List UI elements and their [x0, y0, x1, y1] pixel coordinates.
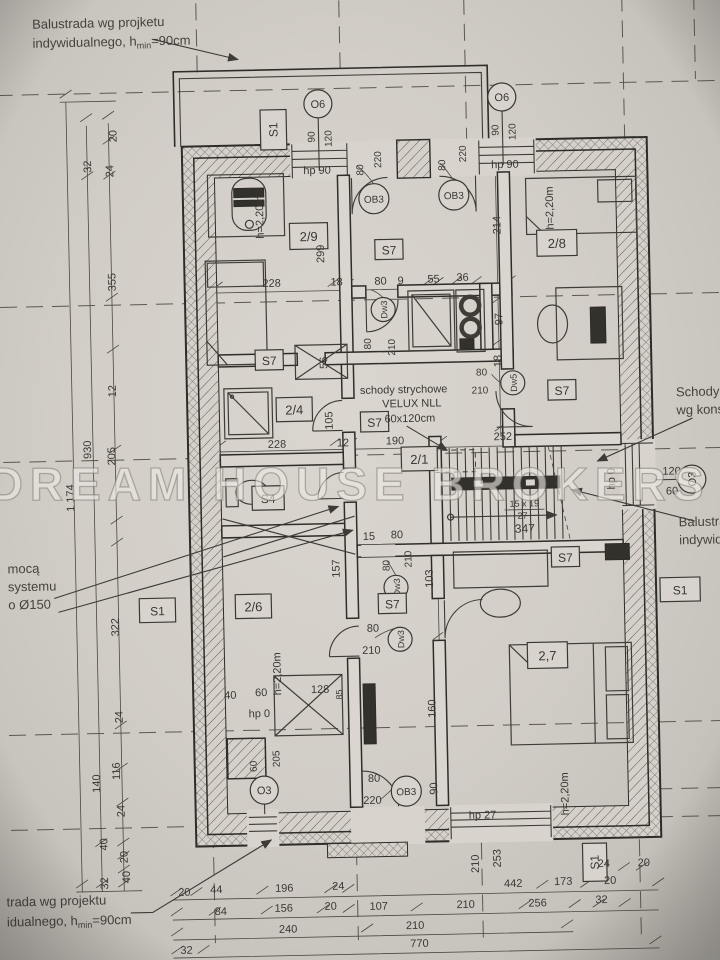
wall-tag-s7: S7 — [554, 384, 569, 398]
dim-label: 80 — [368, 773, 380, 785]
dim-label: 24 — [114, 711, 126, 723]
dim-label: 32 — [99, 877, 111, 889]
room-label-24: 2/4 — [285, 402, 303, 417]
dim-label: 156 — [274, 903, 293, 915]
dim-label: 60 — [255, 687, 267, 699]
dim-label: 157 — [330, 559, 342, 578]
dim-label: 24 — [104, 165, 116, 177]
note-balustrade-right-line2: indywidua — [679, 531, 720, 547]
dim-label: 80 — [367, 623, 379, 635]
dim-label: 12 — [107, 385, 119, 397]
dim-label: 12 — [337, 437, 349, 449]
dim-label: 40 — [121, 871, 133, 883]
dim-label: 107 — [369, 901, 388, 913]
dim-label: 210 — [456, 899, 475, 911]
dim-label: 770 — [410, 938, 429, 950]
dim-label: 32 — [82, 160, 94, 172]
dim-label: 930 — [82, 440, 94, 459]
stair-run-label: 347 — [515, 521, 536, 535]
dim-label: 116 — [111, 762, 123, 780]
dim-label: 220 — [458, 145, 469, 162]
sill-label: hp 0 — [249, 708, 271, 720]
door-tag-dw3: Dw3 — [396, 630, 406, 648]
floor-plan-photo: O6 O6 OB3 OB3 OB3 O3 O3 Dw3 Dw3 Dw3 Dw5 … — [0, 0, 720, 960]
dim-label: 220 — [373, 151, 384, 168]
note-attic-line1: schody strychowe — [360, 383, 448, 397]
dim-label: 18 — [330, 276, 342, 288]
window-tag-o6: O6 — [494, 92, 509, 104]
dim-label: 32 — [180, 945, 192, 957]
sill-label: hp 27 — [469, 809, 497, 822]
note-vent-line1: mocą — [7, 561, 40, 577]
dim-label: 20 — [324, 901, 336, 913]
dim-label: 80 — [437, 159, 448, 171]
dim-label: 299 — [315, 245, 327, 264]
dim-label: 24 — [598, 858, 610, 870]
dim-label: 20 — [638, 857, 650, 869]
dim-label: 44 — [210, 884, 222, 896]
dim-label: 256 — [528, 897, 547, 909]
note-stairs-line1: Schody ż — [676, 383, 720, 399]
dim-label: 240 — [279, 923, 298, 935]
door-tag-ob3: OB3 — [396, 787, 417, 798]
stair-riser-label: 27 — [517, 511, 527, 521]
room-label-28: 2/8 — [548, 236, 566, 251]
wall-pier — [397, 140, 431, 179]
dim-label: 97 — [493, 313, 505, 325]
dim-label: 18 — [492, 355, 504, 367]
dim-label: 120 — [507, 123, 518, 140]
dim-label: 56 — [318, 357, 330, 369]
wall-tag-s7: S7 — [381, 243, 396, 257]
dim-label: 190 — [386, 435, 405, 447]
height-label: h=2,20m — [544, 186, 557, 229]
window-tag-o6: O6 — [310, 99, 325, 111]
height-label: h=2,20m — [559, 772, 572, 815]
chimney — [227, 738, 266, 779]
note-attic-line3: 60x120cm — [384, 412, 435, 425]
floor-plan: O6 O6 OB3 OB3 OB3 O3 O3 Dw3 Dw3 Dw3 Dw5 … — [0, 0, 720, 960]
dim-label: 252 — [494, 431, 513, 443]
dim-label: 24 — [332, 880, 344, 892]
door-tag-ob3: OB3 — [444, 191, 465, 202]
height-label: h=2,20m — [271, 652, 284, 695]
wall-tag-s7: S7 — [262, 354, 277, 368]
dim-label: 253 — [492, 849, 504, 868]
door-tag-dw3: Dw3 — [379, 300, 389, 318]
dim-label: 228 — [262, 278, 281, 290]
note-stairs-line2: wg konstr — [675, 401, 720, 417]
dim-label: 20 — [604, 875, 616, 887]
dim-label: 196 — [275, 883, 294, 895]
dim-label: 210 — [362, 645, 381, 657]
door-tag-dw5: Dw5 — [509, 374, 519, 392]
dim-label: 128 — [311, 684, 330, 696]
dim-label: 205 — [271, 750, 282, 767]
room-label-29: 2/9 — [299, 229, 317, 244]
dim-label: 90 — [428, 782, 440, 794]
dim-label: 80 — [374, 275, 386, 287]
dim-label: 85 — [334, 689, 344, 699]
window-tag-o3: O3 — [257, 785, 272, 797]
dim-label: 322 — [110, 618, 122, 637]
dim-label: 15 — [363, 531, 375, 543]
dim-label: 442 — [504, 878, 523, 890]
dim-label: 120 — [323, 130, 334, 147]
wall-tag-s7: S7 — [385, 597, 400, 611]
note-attic-line2: VELUX NLL — [382, 397, 442, 410]
dim-label: 355 — [106, 273, 118, 292]
dim-label: 84 — [215, 906, 227, 918]
dim-label: 80 — [381, 559, 392, 571]
note-balustrade-right-line1: Balustrad — [679, 513, 720, 529]
note-vent-line3: o Ø150 — [8, 597, 51, 613]
dim-label: 210 — [471, 385, 488, 396]
dim-label: 80 — [391, 529, 403, 541]
porch-slab — [327, 842, 407, 858]
dim-label: 140 — [91, 774, 103, 793]
wall-tag-s1: S1 — [150, 604, 165, 618]
radiator — [363, 684, 376, 744]
dim-label: 80 — [363, 338, 374, 350]
dim-label: 36 — [456, 272, 468, 284]
dim-label: 210 — [406, 920, 425, 932]
dim-label: 60 — [249, 760, 260, 772]
dim-label: 32 — [595, 894, 607, 906]
dim-label: 9 — [397, 275, 403, 287]
dim-label: 24 — [116, 805, 128, 817]
dim-label: 105 — [323, 411, 335, 430]
wall-tag-s7: S7 — [367, 416, 382, 430]
sill-label: hp 90 — [491, 159, 519, 172]
note-balustrade-top-line1: Balustrada wg projketu — [32, 14, 165, 32]
dim-label: 160 — [426, 699, 438, 718]
sill-label: hp 90 — [303, 165, 331, 178]
dim-label: 80 — [476, 367, 488, 378]
dim-label: 103 — [424, 569, 436, 588]
wall-tag-s1: S1 — [673, 583, 688, 597]
wall-tag-s7: S7 — [558, 551, 573, 565]
note-balustrade-bottom-line1: trada wg projektu — [6, 892, 106, 909]
dim-label: 80 — [355, 164, 366, 176]
dim-label: 90 — [306, 131, 317, 143]
dim-label: 220 — [363, 795, 382, 807]
dim-label: 20 — [107, 130, 119, 142]
height-label: h=2,20m — [254, 195, 267, 238]
door-tag-ob3: OB3 — [364, 194, 385, 205]
dim-label: 210 — [403, 550, 414, 567]
dim-label: 214 — [491, 216, 503, 235]
dim-label: 55 — [427, 273, 439, 285]
room-label-27: 2,7 — [538, 648, 556, 663]
dim-label: 90 — [490, 124, 501, 136]
dim-label: 40 — [98, 838, 110, 850]
note-vent-line2: systemu — [8, 578, 57, 594]
dim-label: 173 — [554, 876, 573, 888]
wall-tag-s1: S1 — [266, 122, 280, 137]
watermark: DREAM HOUSE BROKERS — [0, 458, 710, 510]
dim-label: 210 — [387, 338, 398, 355]
room-label-26: 2/6 — [244, 599, 262, 614]
dim-label: 210 — [470, 854, 482, 873]
dim-label: 228 — [268, 439, 287, 451]
dim-label: 40 — [224, 690, 236, 702]
duct — [605, 543, 629, 559]
dim-label: 20 — [118, 851, 130, 863]
